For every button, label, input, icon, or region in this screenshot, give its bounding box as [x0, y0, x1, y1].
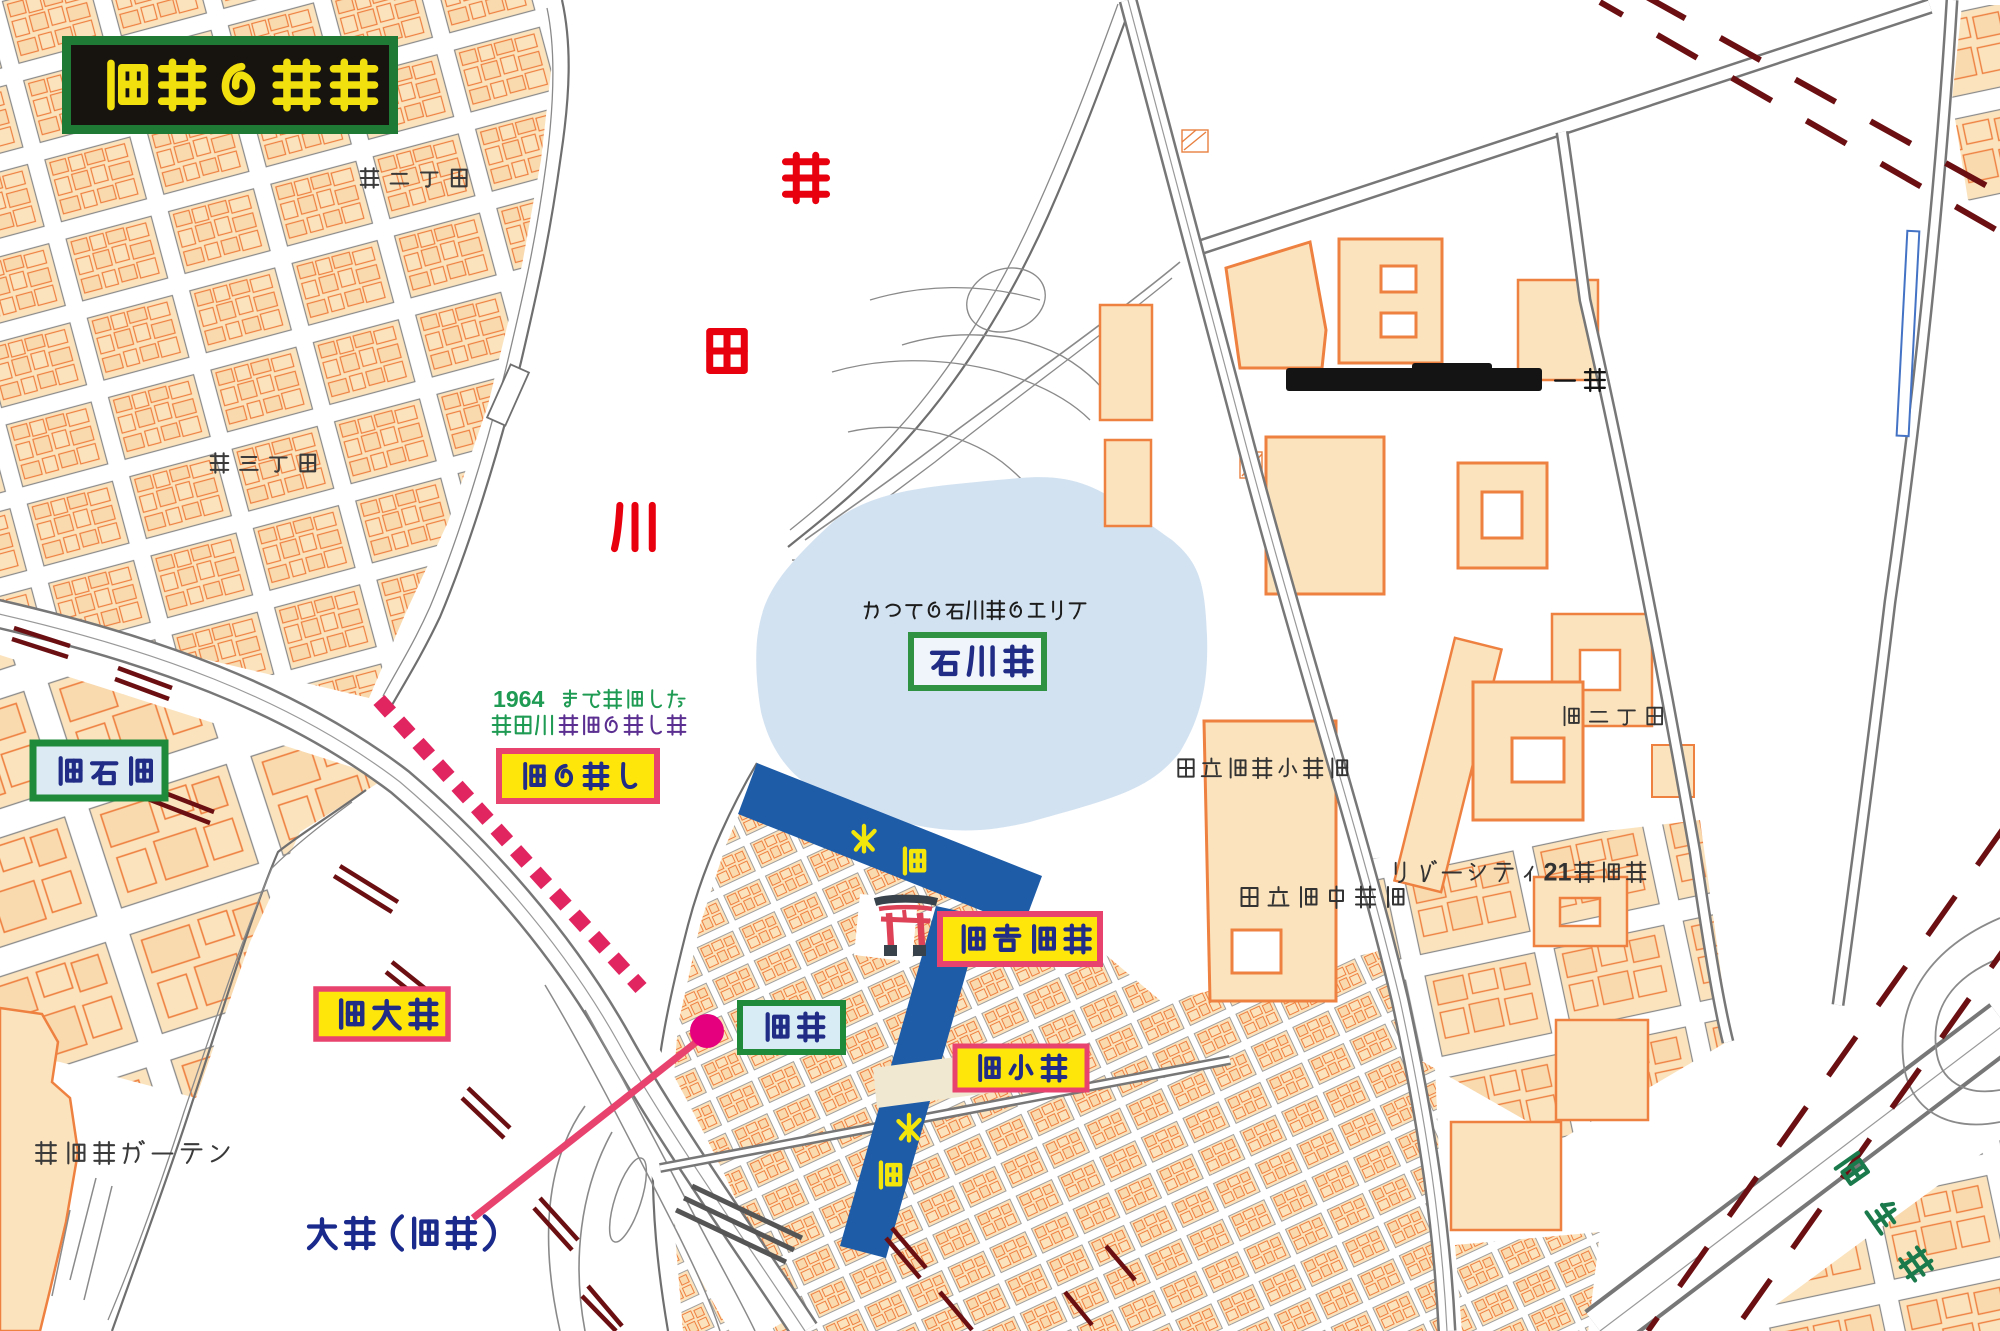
- svg-text:21: 21: [1544, 859, 1572, 887]
- svg-text:1964: 1964: [493, 686, 545, 712]
